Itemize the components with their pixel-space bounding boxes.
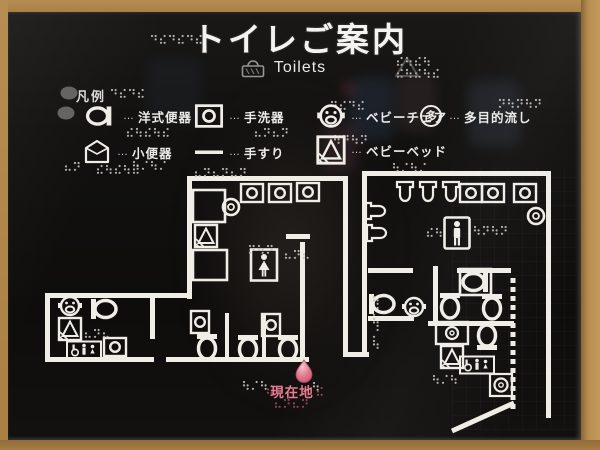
legend-dots: … xyxy=(449,111,459,121)
page-title: トイレご案内 xyxy=(0,13,600,61)
legend-item-handrail: … 手すり xyxy=(194,139,285,165)
legend-dots: … xyxy=(351,111,361,121)
legend-item-hand-washer: … 手洗器 xyxy=(194,103,285,129)
urinal-icon xyxy=(82,138,112,166)
hand-washer-icon xyxy=(194,103,224,129)
legend-dots: … xyxy=(117,147,127,157)
baby-chair-icon xyxy=(316,103,346,129)
legend-label: 手洗器 xyxy=(244,107,285,126)
legend-dots: … xyxy=(229,111,239,121)
legend-item-urinal: … 小便器 xyxy=(82,139,173,165)
multipurpose-sink-icon-char: 多 xyxy=(425,109,437,124)
western-toilet-icon xyxy=(80,103,118,129)
legend-label: 多目的流し xyxy=(464,107,532,126)
tactile-triangle-icon xyxy=(393,55,421,79)
legend-dots: … xyxy=(229,147,239,157)
toilet-guide-sign-photo: 現在地 トイレご案内 Toilets 凡例 … 洋式便器 … 手洗器 xyxy=(0,0,600,450)
legend-label: 小便器 xyxy=(132,143,173,162)
multipurpose-sink-icon: 多 xyxy=(418,103,444,129)
legend-label: 洋式便器 xyxy=(138,107,192,126)
baby-bed-icon xyxy=(316,135,346,165)
tactile-audio-icon xyxy=(241,60,265,78)
legend-item-multipurpose-sink: 多 … 多目的流し xyxy=(418,103,532,129)
legend-label: 手すり xyxy=(244,143,285,162)
wall-frame-bottom xyxy=(0,440,600,450)
legend-item-baby-bed: … ベビーベッド xyxy=(316,137,447,163)
legend-label: ベビーベッド xyxy=(366,141,447,160)
wall-frame-top xyxy=(0,0,600,12)
legend-dots: … xyxy=(123,111,133,121)
handrail-icon xyxy=(194,139,224,165)
wall-frame-right xyxy=(581,0,600,450)
page-title-english: Toilets xyxy=(0,59,600,77)
legend-dots: … xyxy=(351,145,361,155)
wall-frame-left xyxy=(0,0,8,450)
legend-item-western-toilet: … 洋式便器 xyxy=(80,103,192,129)
